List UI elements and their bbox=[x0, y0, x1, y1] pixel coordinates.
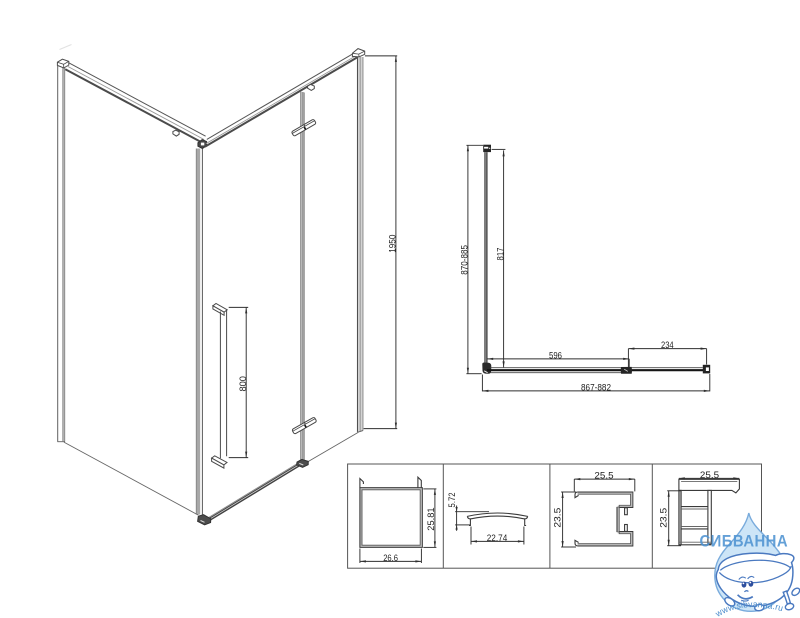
svg-text:870-885: 870-885 bbox=[459, 245, 470, 275]
svg-text:234: 234 bbox=[661, 340, 674, 351]
svg-text:25.5: 25.5 bbox=[700, 470, 719, 481]
svg-text:817: 817 bbox=[495, 248, 506, 261]
svg-text:26.6: 26.6 bbox=[383, 553, 398, 564]
svg-text:23.5: 23.5 bbox=[553, 508, 564, 528]
svg-text:25.5: 25.5 bbox=[594, 471, 613, 482]
svg-text:596: 596 bbox=[549, 350, 562, 361]
svg-text:5.72: 5.72 bbox=[447, 493, 458, 508]
svg-text:СИБВАННА: СИБВАННА bbox=[700, 532, 789, 551]
svg-text:25.81: 25.81 bbox=[426, 507, 437, 530]
svg-text:23.5: 23.5 bbox=[659, 508, 670, 528]
svg-text:22.74: 22.74 bbox=[487, 533, 508, 544]
svg-text:800: 800 bbox=[238, 376, 249, 392]
svg-text:867-882: 867-882 bbox=[581, 383, 611, 394]
svg-text:1950: 1950 bbox=[388, 235, 399, 253]
